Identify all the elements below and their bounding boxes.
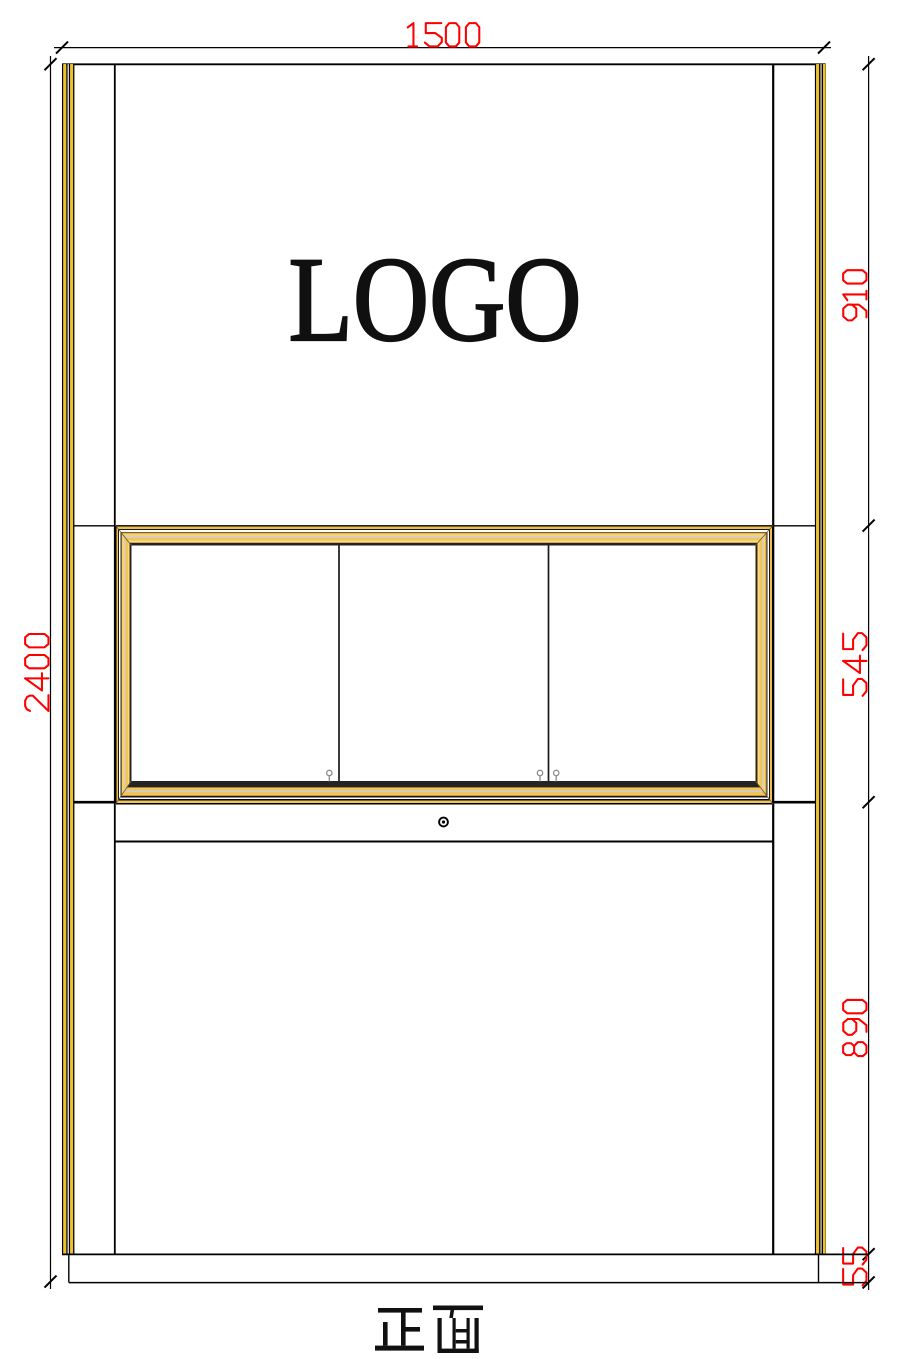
- svg-text:LOGO: LOGO: [288, 232, 581, 366]
